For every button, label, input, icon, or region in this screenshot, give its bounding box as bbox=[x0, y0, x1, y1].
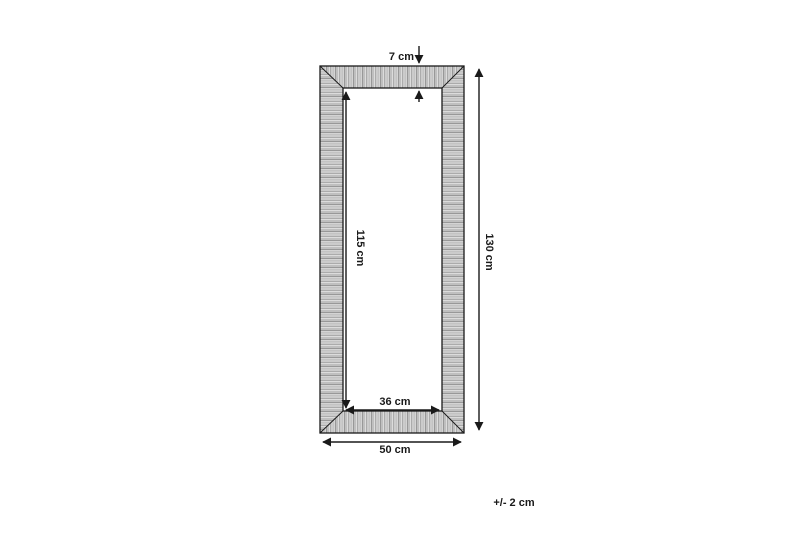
tolerance-note: +/- 2 cm bbox=[493, 497, 534, 509]
frame-left-piece bbox=[320, 66, 343, 433]
inner-width-label: 36 cm bbox=[379, 396, 410, 408]
diagram-canvas: 7 cm 115 cm 130 cm 36 cm 50 cm +/- 2 cm bbox=[0, 0, 800, 533]
frame-top-piece bbox=[320, 66, 464, 88]
dimension-outer-width: 50 cm bbox=[323, 442, 461, 456]
inner-height-label: 115 cm bbox=[354, 230, 366, 267]
outer-width-label: 50 cm bbox=[379, 444, 410, 456]
frame-thickness-label: 7 cm bbox=[389, 51, 414, 63]
dimension-inner-width: 36 cm bbox=[346, 396, 439, 410]
outer-height-label: 130 cm bbox=[483, 233, 495, 271]
mirror-frame bbox=[320, 66, 464, 433]
frame-bottom-piece bbox=[320, 411, 464, 433]
dimension-inner-height: 115 cm bbox=[346, 92, 366, 408]
frame-right-piece bbox=[442, 66, 464, 433]
mirror-dimension-diagram: 7 cm 115 cm 130 cm 36 cm 50 cm +/- 2 cm bbox=[0, 0, 800, 533]
dimension-outer-height: 130 cm bbox=[479, 69, 495, 430]
